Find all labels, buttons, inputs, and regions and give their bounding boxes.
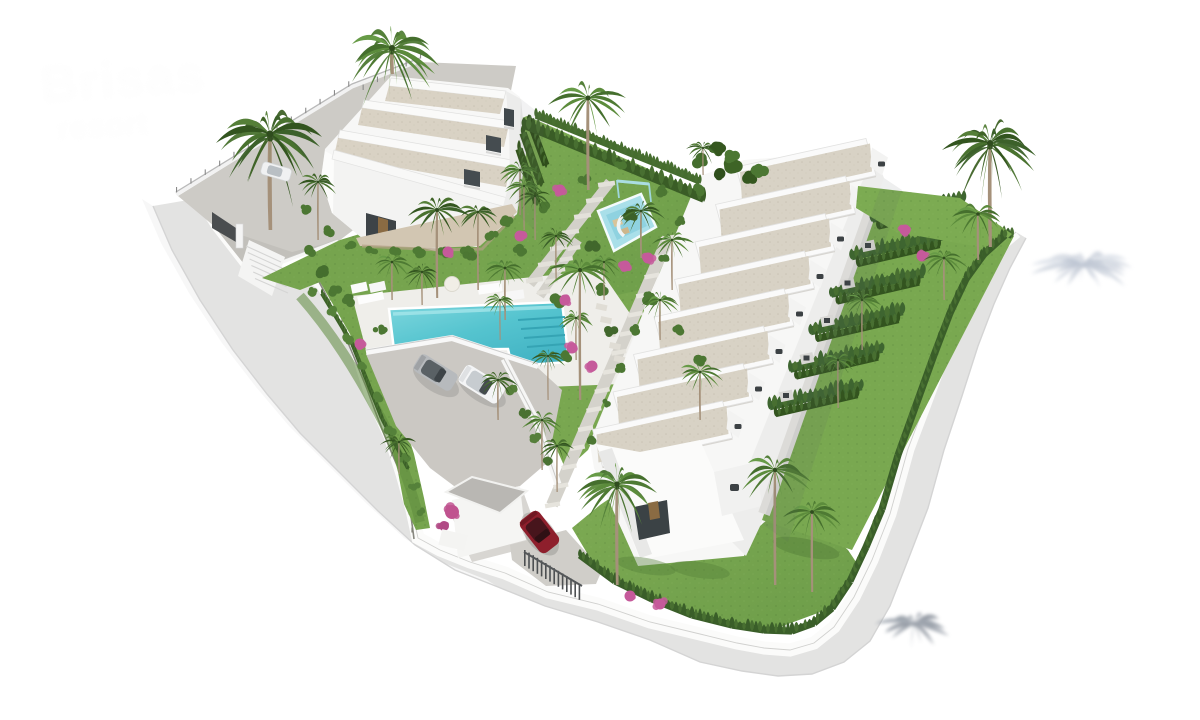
svg-text:resort: resort (56, 105, 149, 147)
svg-text:Brisas: Brisas (39, 46, 207, 113)
